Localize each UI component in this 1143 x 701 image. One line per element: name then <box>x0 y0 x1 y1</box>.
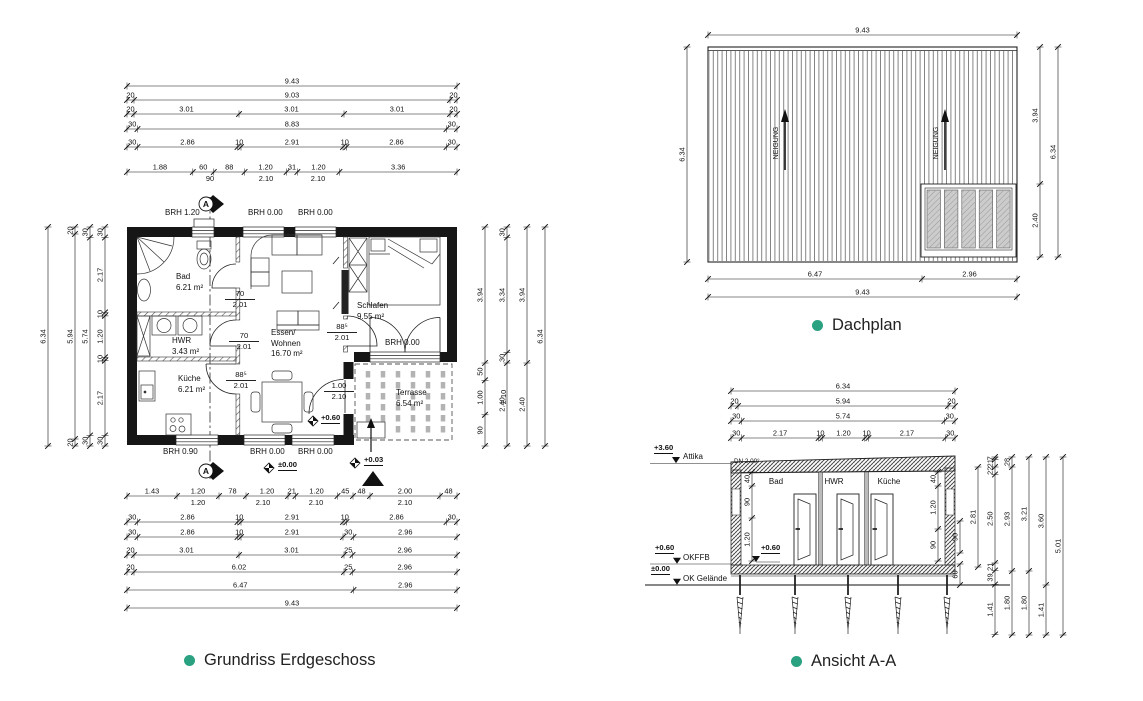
dim-label: 40 <box>743 475 752 483</box>
dim-label: 21 <box>986 459 995 467</box>
dim-label: 30 <box>448 138 456 147</box>
dim-label: 90 <box>476 426 485 434</box>
level-label: +3.60 <box>654 443 673 454</box>
dim-label: 2.86 <box>180 138 194 147</box>
brh-label: BRH 1.20 <box>165 208 200 219</box>
caption-dot <box>791 656 802 667</box>
dim-label: 1.88 <box>153 163 167 172</box>
dim-label: 2.10 <box>309 498 323 507</box>
dim-label: 10 <box>862 429 870 438</box>
room-label-hwr: HWR 3.43 m² <box>172 336 199 357</box>
dim-label: 28 <box>1003 458 1012 466</box>
dim-label: 78 <box>228 487 236 496</box>
brh-label: BRH 0.00 <box>298 447 333 458</box>
room-label-bad: Bad 6.21 m² <box>176 272 203 293</box>
section-letter: A <box>203 199 209 209</box>
fridge-icon <box>139 371 155 401</box>
dim-label: 3.01 <box>284 546 298 555</box>
dim-label: 20 <box>126 105 134 114</box>
brh-label: BRH 0.90 <box>163 447 198 458</box>
wc-icon <box>197 241 211 249</box>
dim-label: 2.96 <box>398 581 412 590</box>
dim-label: 20 <box>126 563 134 572</box>
dim-label: 21 <box>986 563 995 571</box>
dim-label: 10 <box>816 429 824 438</box>
level-label: +0.60 <box>761 543 780 554</box>
dim-label: 1.20 <box>311 163 325 172</box>
dim-label: 1.20 <box>309 487 323 496</box>
brh-label: BRH 0.00 <box>248 208 283 219</box>
dim-label: 2.17 <box>773 429 787 438</box>
dim-label: 1.41 <box>986 602 995 616</box>
dim-label: 30 <box>344 528 352 537</box>
door-size-label: 88⁵ 2.01 <box>327 322 357 342</box>
dim-label: 88 <box>225 163 233 172</box>
dim-label: 10 <box>341 138 349 147</box>
entrance-triangle-icon <box>362 471 384 486</box>
dim-label: 20 <box>66 438 75 446</box>
caption-floor-plan: Grundriss Erdgeschoss <box>184 651 376 670</box>
dim-label: 9.43 <box>855 288 869 297</box>
dim-label: 3.01 <box>179 105 193 114</box>
dim-label: 5.01 <box>1054 539 1063 553</box>
dim-label: 3.60 <box>1037 514 1046 528</box>
dim-label: 5.94 <box>66 329 75 343</box>
dim-label: 1.20 <box>743 532 752 546</box>
dim-label: 2.17 <box>96 391 105 405</box>
dim-label: 2.40 <box>1031 213 1040 227</box>
dim-label: 2.17 <box>900 429 914 438</box>
dim-label: 6.34 <box>836 382 850 391</box>
roof-terrace-panels <box>921 184 1016 257</box>
dim-label: 30 <box>128 138 136 147</box>
dim-label: 1.20 <box>191 487 205 496</box>
dim-label: 30 <box>732 412 740 421</box>
door-size-label: 70 2.01 <box>225 289 255 309</box>
caption-text: Ansicht A-A <box>811 652 896 671</box>
caption-roof-plan: Dachplan <box>812 316 902 335</box>
dim-label: 90 <box>951 533 960 541</box>
dim-label: 3.94 <box>476 288 485 302</box>
dim-label: 3.36 <box>391 163 405 172</box>
dim-label: 1.41 <box>1037 603 1046 617</box>
bed-icon <box>369 237 440 305</box>
dim-label: 20 <box>126 546 134 555</box>
dryer-icon <box>178 316 202 335</box>
dim-label: 10 <box>341 513 349 522</box>
dim-label: 30 <box>498 354 507 362</box>
dim-label: 2.10 <box>259 174 273 183</box>
level-label: +0.03 <box>364 455 383 466</box>
slope-label: NEIGUNG <box>933 127 940 160</box>
dim-label: 25 <box>344 546 352 555</box>
dim-label: 9.43 <box>855 26 869 35</box>
dim-label: 20 <box>730 397 738 406</box>
dim-label: 8.83 <box>285 120 299 129</box>
dim-label: 2.10 <box>311 174 325 183</box>
door-size-label: 1.00 2.10 <box>324 381 354 401</box>
dim-label: 30 <box>81 228 90 236</box>
sofa-icon <box>251 235 322 289</box>
dim-label: 2.91 <box>285 138 299 147</box>
dim-label: 2.10 <box>256 498 270 507</box>
dim-label: 3.01 <box>390 105 404 114</box>
dim-label: 10 <box>96 355 105 363</box>
dim-label: 20 <box>449 91 457 100</box>
dim-label: 6.34 <box>1049 145 1058 159</box>
section-room-label: Bad <box>769 477 783 488</box>
section-room-label: HWR <box>824 477 843 488</box>
dim-label: 30 <box>96 437 105 445</box>
dim-label: 39 <box>986 573 995 581</box>
dim-label: 40 <box>929 475 938 483</box>
dim-label: 9.43 <box>285 599 299 608</box>
door-size-label: 70 2.01 <box>229 331 259 351</box>
dim-label: 3.21 <box>1020 507 1029 521</box>
dim-label: 3.01 <box>284 105 298 114</box>
dim-label: 1.20 <box>258 163 272 172</box>
dim-label: 45 <box>341 487 349 496</box>
dim-label: 2.96 <box>962 270 976 279</box>
dim-label: 2.91 <box>285 528 299 537</box>
dim-label: 90 <box>929 541 938 549</box>
dim-label: 1.80 <box>1020 596 1029 610</box>
shower-icon <box>137 237 174 274</box>
dim-label: 21 <box>288 487 296 496</box>
dim-label: 10 <box>235 138 243 147</box>
dim-label: 30 <box>81 437 90 445</box>
dim-label: 90 <box>743 498 752 506</box>
room-label-schlafen: Schlafen 9.55 m² <box>357 301 388 322</box>
room-label-terrasse: Terrasse 6.54 m² <box>396 388 427 409</box>
section-room-label: Küche <box>878 477 901 488</box>
dim-label: 1.43 <box>145 487 159 496</box>
dim-label: 10 <box>235 528 243 537</box>
dim-label: 30 <box>128 513 136 522</box>
slope-label: NEIGUNG <box>773 127 780 160</box>
dim-label: 6.47 <box>233 581 247 590</box>
dim-label: 30 <box>448 120 456 129</box>
dim-label: 2.86 <box>180 513 194 522</box>
dim-label: 3.94 <box>518 288 527 302</box>
dim-label: 3.01 <box>179 546 193 555</box>
dim-label: 2.00 <box>398 487 412 496</box>
dim-label: 2.50 <box>986 512 995 526</box>
dim-label: 2.81 <box>969 510 978 524</box>
dim-label: 2.96 <box>398 546 412 555</box>
dim-label: 30 <box>946 412 954 421</box>
dim-label: 6.34 <box>39 329 48 343</box>
washbasin-icon <box>138 279 151 301</box>
dim-label: 3.94 <box>1031 108 1040 122</box>
dim-label: 30 <box>946 429 954 438</box>
dim-label: 20 <box>66 226 75 234</box>
dim-label: 2.10 <box>499 390 508 404</box>
washer-icon <box>152 316 176 335</box>
brh-label: BRH 0.00 <box>298 208 333 219</box>
dim-label: 2.96 <box>398 528 412 537</box>
dim-label: 6.34 <box>678 147 687 161</box>
dim-label: 30 <box>128 120 136 129</box>
dim-label: 20 <box>126 91 134 100</box>
dim-label: 2.86 <box>389 138 403 147</box>
sofa2-icon <box>277 311 298 325</box>
caption-text: Grundriss Erdgeschoss <box>204 651 376 670</box>
roof-plan-linework <box>708 47 1017 262</box>
dim-label: 5.74 <box>836 412 850 421</box>
room-label-wohnen: Essen/ Wohnen 16.70 m² <box>271 328 303 360</box>
sliding-door <box>342 270 349 314</box>
dim-label: 2.10 <box>398 498 412 507</box>
door-size-label: 88⁵ 2.01 <box>226 370 256 390</box>
drawing-sheet: 9.43209.0320203.013.013.0120308.8330302.… <box>0 0 1143 701</box>
caption-dot <box>812 320 823 331</box>
dim-label: 3.34 <box>498 288 507 302</box>
dim-label: 1.20 <box>191 498 205 507</box>
dim-label: 30 <box>96 228 105 236</box>
dim-label: 60 <box>951 570 960 578</box>
dim-label: 30 <box>732 429 740 438</box>
dim-label: 10 <box>235 513 243 522</box>
level-name: OKFFB <box>683 553 710 564</box>
section-letter: A <box>203 466 209 476</box>
dim-label: 2.40 <box>518 397 527 411</box>
dim-label: 2.96 <box>398 563 412 572</box>
dim-label: 30 <box>448 513 456 522</box>
dim-label: 30 <box>128 528 136 537</box>
caption-dot <box>184 655 195 666</box>
dim-label: 48 <box>357 487 365 496</box>
dim-label: 2.86 <box>180 528 194 537</box>
dim-label: 1.20 <box>836 429 850 438</box>
dim-label: 60 <box>199 163 207 172</box>
level-label: +0.60 <box>655 543 674 554</box>
dim-label: 30 <box>498 228 507 236</box>
caption-text: Dachplan <box>832 316 902 335</box>
dim-label: 9.43 <box>285 77 299 86</box>
dim-label: 6.34 <box>536 329 545 343</box>
dim-label: 5.94 <box>836 397 850 406</box>
dim-label: 1.20 <box>96 329 105 343</box>
dim-label: 50 <box>476 368 485 376</box>
dim-label: 25 <box>344 563 352 572</box>
caption-section: Ansicht A-A <box>791 652 896 671</box>
dim-label: 48 <box>444 487 452 496</box>
dim-label: 6.47 <box>808 270 822 279</box>
brh-label: BRH 0.00 <box>250 447 285 458</box>
dining-table-icon <box>262 382 302 422</box>
dim-label: 2.17 <box>96 268 105 282</box>
dim-label: 20 <box>947 397 955 406</box>
dim-label: 1.80 <box>1003 596 1012 610</box>
level-label: +0.60 <box>321 413 340 424</box>
dim-label: 31 <box>288 163 296 172</box>
dim-label: 2.86 <box>389 513 403 522</box>
level-name: Attika <box>683 452 703 463</box>
dim-label: 90 <box>206 174 214 183</box>
level-label: ±0.00 <box>278 460 297 471</box>
level-name: OK Gelände <box>683 574 727 585</box>
dim-label: 5.74 <box>81 329 90 343</box>
dim-label: 20 <box>449 105 457 114</box>
room-label-kueche: Küche 6.21 m² <box>178 374 205 395</box>
dim-label: 2.91 <box>285 513 299 522</box>
dim-label: 9.03 <box>285 91 299 100</box>
dim-label: 1.20 <box>260 487 274 496</box>
stove-icon <box>166 414 191 435</box>
dim-label: 10 <box>96 310 105 318</box>
dim-label: 22 <box>986 467 995 475</box>
plan-windows <box>176 219 440 445</box>
brh-label: BRH 0.00 <box>385 338 420 349</box>
dim-label: 1.20 <box>929 500 938 514</box>
dim-label: 1.00 <box>476 390 485 404</box>
dim-label: 6.02 <box>232 563 246 572</box>
dim-label: 2.93 <box>1003 512 1012 526</box>
roof-slope-label: DN 2.00° <box>734 457 760 468</box>
level-label: ±0.00 <box>651 564 670 575</box>
coffee-table-icon <box>282 271 312 293</box>
